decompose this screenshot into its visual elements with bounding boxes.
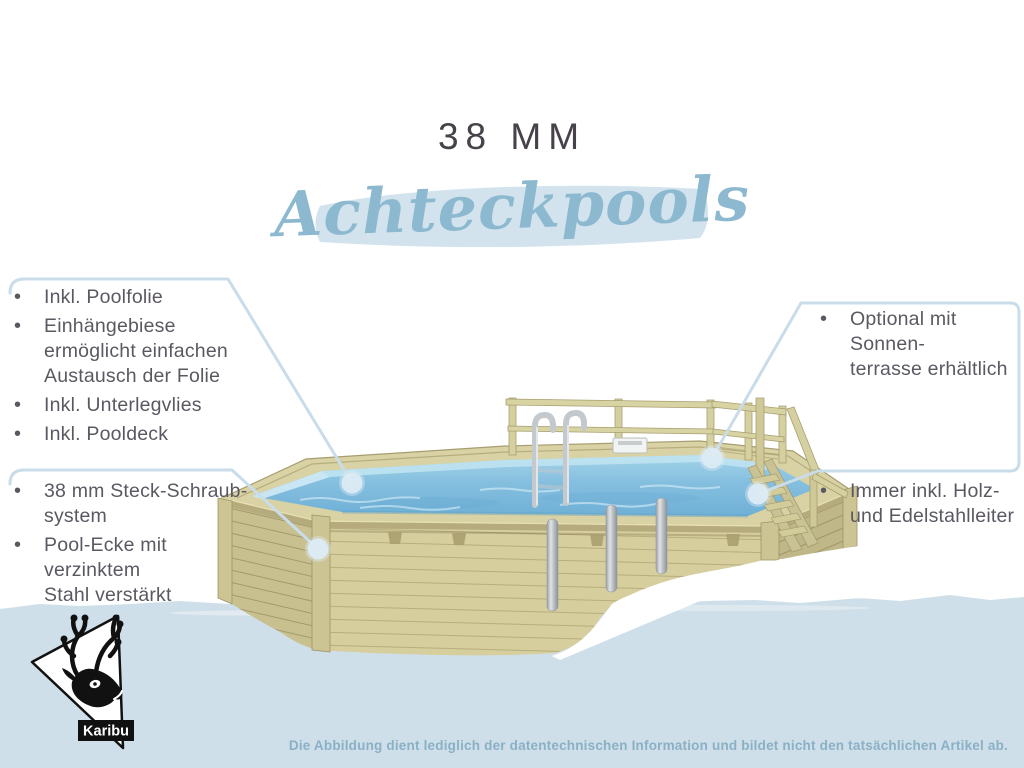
feature-text: Einhängebiese ermöglicht einfachen Austa… <box>44 314 228 389</box>
list-item: • Pool-Ecke mit verzinktem Stahl verstär… <box>14 533 254 608</box>
feature-list-left-bottom: • 38 mm Steck-Schraub- system • Pool-Eck… <box>14 479 254 612</box>
bullet-dot: • <box>820 307 850 382</box>
infographic-page: Karibu 38 MM Achteckpools • Inkl. Poolfo… <box>0 0 1024 768</box>
skimmer-box <box>613 438 647 453</box>
bullet-dot: • <box>820 479 850 529</box>
bullet-dot: • <box>14 314 44 389</box>
feature-list-right-bottom: • Immer inkl. Holz- und Edelstahlleiter <box>820 479 1024 533</box>
feature-text: Inkl. Unterlegvlies <box>44 393 202 418</box>
bullet-dot: • <box>14 393 44 418</box>
feature-list-left-top: • Inkl. Poolfolie • Einhängebiese ermögl… <box>14 285 246 451</box>
logo-wordmark: Karibu <box>83 724 129 740</box>
list-item: • Einhängebiese ermöglicht einfachen Aus… <box>14 314 246 389</box>
feature-text: Inkl. Pooldeck <box>44 422 168 447</box>
page-title: 38 MM <box>0 116 1024 158</box>
list-item: • Inkl. Unterlegvlies <box>14 393 246 418</box>
feature-list-right-top: • Optional mit Sonnen- terrasse erhältli… <box>820 307 1024 386</box>
bullet-dot: • <box>14 479 44 529</box>
list-item: • Inkl. Poolfolie <box>14 285 246 310</box>
feature-text: 38 mm Steck-Schraub- system <box>44 479 247 529</box>
bullet-dot: • <box>14 285 44 310</box>
feature-text: Pool-Ecke mit verzinktem Stahl verstärkt <box>44 533 254 608</box>
list-item: • Immer inkl. Holz- und Edelstahlleiter <box>820 479 1024 529</box>
list-item: • Inkl. Pooldeck <box>14 422 246 447</box>
list-item: • Optional mit Sonnen- terrasse erhältli… <box>820 307 1024 382</box>
feature-text: Inkl. Poolfolie <box>44 285 163 310</box>
bullet-dot: • <box>14 422 44 447</box>
feature-text: Immer inkl. Holz- und Edelstahlleiter <box>850 479 1014 529</box>
bullet-dot: • <box>14 533 44 608</box>
list-item: • 38 mm Steck-Schraub- system <box>14 479 254 529</box>
footer-disclaimer: Die Abbildung dient lediglich der datent… <box>289 738 1008 753</box>
feature-text: Optional mit Sonnen- terrasse erhältlich <box>850 307 1024 382</box>
